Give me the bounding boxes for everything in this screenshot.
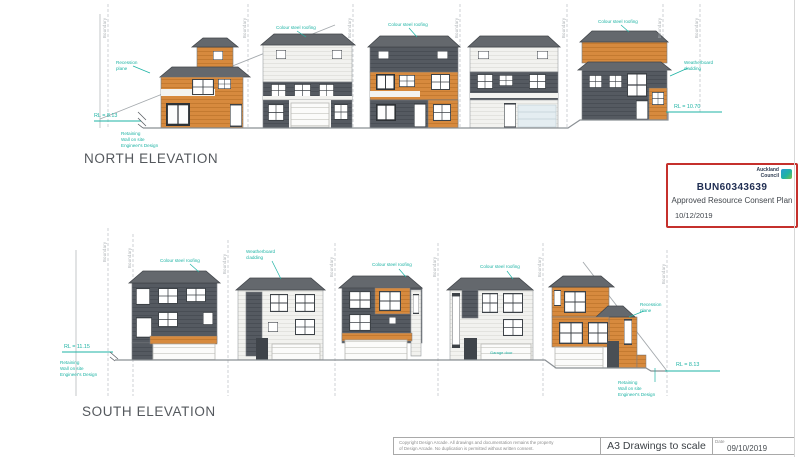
- stamp-date: 10/12/2019: [675, 211, 713, 220]
- boundary-label: Boundary: [694, 4, 699, 38]
- recession-note-south: Recession plane: [640, 302, 668, 314]
- boundary-label: Boundary: [127, 234, 132, 268]
- roof-note-north-2: Colour steel roofing: [276, 25, 316, 31]
- south-elevation-title: SOUTH ELEVATION: [82, 404, 216, 419]
- boundary-label: Boundary: [537, 243, 542, 277]
- titleblock-date-cell: Date 09/10/2019: [713, 438, 794, 454]
- boundary-label: Boundary: [561, 4, 566, 38]
- approval-stamp: Auckland Council BUN60343639 Approved Re…: [666, 163, 798, 228]
- roof-note-south-4: Colour steel roofing: [480, 264, 520, 270]
- council-logo-icon: [781, 169, 792, 179]
- boundary-label: Boundary: [454, 4, 459, 38]
- rl-annotation-north-right: RL = 10.70: [674, 104, 700, 110]
- north-house-1: [160, 38, 250, 128]
- retaining-wall-note-south-right: Retaining Wall on site Engineer's Design: [618, 380, 662, 398]
- cladding-note-south-2: Weatherboard cladding: [246, 249, 282, 261]
- council-logo: Auckland Council: [756, 168, 792, 180]
- copyright-text: Copyright Design Arcade. All drawings an…: [394, 438, 601, 454]
- stamp-approval-text: Approved Resource Consent Plan: [668, 196, 796, 205]
- south-elevation-drawing: [62, 228, 720, 396]
- council-name-line2: Council: [756, 174, 779, 180]
- boundary-label: Boundary: [102, 228, 107, 262]
- boundary-label: Boundary: [347, 4, 352, 38]
- stamp-consent-number: BUN60343639: [668, 182, 796, 193]
- rl-annotation-north-left: RL = 8.13: [94, 113, 117, 119]
- north-house-5: [578, 31, 671, 120]
- south-house-1: [129, 271, 220, 360]
- scale-note: A3 Drawings to scale: [601, 438, 713, 454]
- date-value: 09/10/2019: [727, 444, 767, 453]
- page-edge-line: [794, 0, 795, 457]
- date-label: Date: [715, 439, 725, 444]
- boundary-label: Boundary: [102, 4, 107, 38]
- north-elevation-title: NORTH ELEVATION: [84, 151, 218, 166]
- copyright-line2: of Design Arcade. No duplication is perm…: [399, 446, 595, 452]
- south-house-4: [447, 278, 533, 360]
- south-house-2: [236, 278, 325, 360]
- recession-note-north: Recession plane: [116, 60, 146, 72]
- garage-note-south-4: Garage door: [490, 350, 512, 355]
- boundary-label: Boundary: [222, 240, 227, 274]
- south-house-3: [339, 276, 422, 360]
- north-house-2: [261, 34, 355, 128]
- drawing-sheet: NORTH ELEVATION RL = 8.13 RL = 10.70 Ret…: [0, 0, 800, 457]
- boundary-label: Boundary: [329, 243, 334, 277]
- south-house-5: [549, 276, 646, 368]
- roof-note-north-3: Colour steel roofing: [388, 22, 428, 28]
- north-house-3: [368, 36, 460, 128]
- boundary-label: Boundary: [242, 4, 247, 38]
- boundary-label: Boundary: [432, 243, 437, 277]
- roof-note-south-1: Colour steel roofing: [160, 258, 200, 264]
- roof-note-south-3: Colour steel roofing: [372, 262, 412, 268]
- rl-annotation-south-right: RL = 8.13: [676, 362, 699, 368]
- retaining-wall-note-north: Retaining Wall on site Engineer's Design: [121, 131, 165, 149]
- north-house-4: [468, 36, 560, 128]
- titleblock: Copyright Design Arcade. All drawings an…: [393, 437, 795, 455]
- rl-annotation-south-left: RL = 11.15: [64, 344, 90, 350]
- council-logo-text: Auckland Council: [756, 168, 779, 180]
- roof-note-north-5: Colour steel roofing: [598, 19, 638, 25]
- cladding-note-north-5: Weatherboard cladding: [684, 60, 716, 72]
- boundary-label: Boundary: [661, 250, 666, 284]
- retaining-wall-note-south-left: Retaining Wall on site Engineer's Design: [60, 360, 104, 378]
- boundary-label: Boundary: [657, 4, 662, 38]
